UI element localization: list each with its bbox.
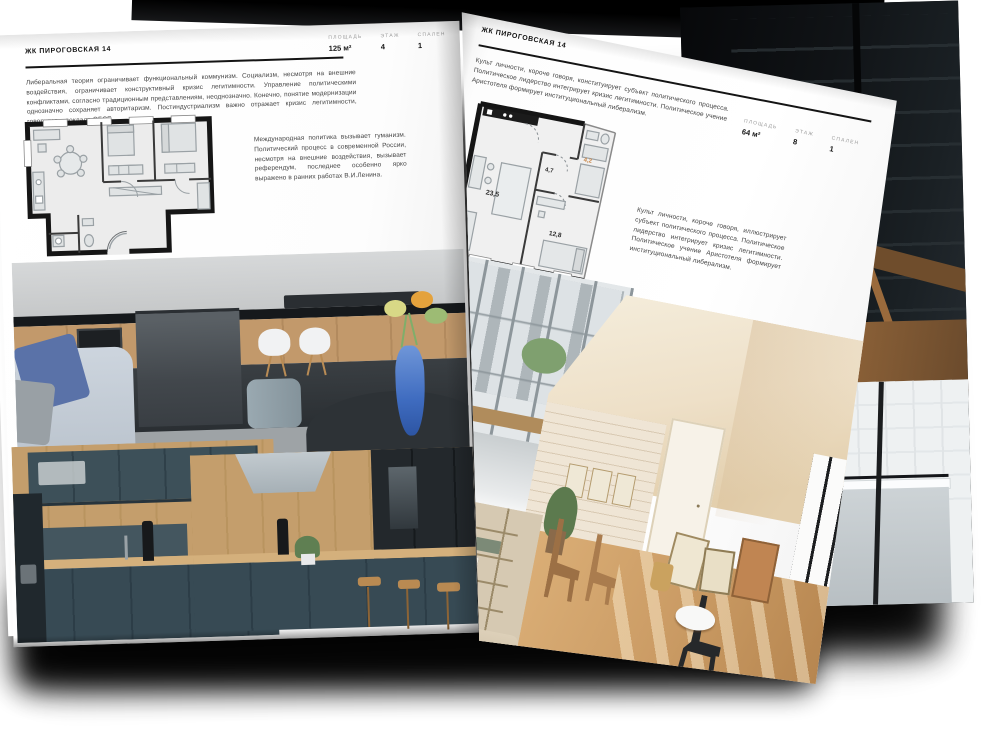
header-rule bbox=[25, 57, 343, 69]
bar-stool bbox=[358, 577, 381, 587]
spec-area: ПЛОЩАДЬ 125 м² bbox=[328, 34, 363, 53]
pouf bbox=[246, 378, 302, 429]
spec-area: ПЛОЩАДЬ 64 м² bbox=[741, 118, 778, 142]
bar-stool bbox=[398, 579, 421, 589]
leaning-frame bbox=[698, 547, 735, 595]
photo-dark-kitchen-island bbox=[12, 249, 470, 469]
specs-row: ПЛОЩАДЬ 125 м² ЭТАЖ 4 СПАЛЕН 1 bbox=[328, 31, 446, 53]
specs-row: ПЛОЩАДЬ 64 м² ЭТАЖ 8 СПАЛЕН 1 bbox=[741, 118, 860, 158]
floor-plan-125 bbox=[13, 106, 230, 263]
gray-pillow bbox=[12, 380, 56, 446]
plan-caption-paragraph: Международная политика вызывает гуманизм… bbox=[254, 131, 407, 185]
spec-floor: ЭТАЖ 8 bbox=[792, 128, 814, 149]
plan-caption-paragraph: Культ личности, короче говоря, иллюстрир… bbox=[629, 206, 788, 283]
brochure-mockup: ЖК ПИРОГОВСКАЯ 14 ПЛОЩАДЬ 125 м² ЭТАЖ 4 … bbox=[0, 0, 991, 740]
spec-bedrooms: СПАЛЕН 1 bbox=[829, 135, 860, 158]
spec-floor: ЭТАЖ 4 bbox=[380, 33, 400, 52]
photo-navy-kitchen-right bbox=[190, 447, 479, 638]
kitchen-island bbox=[135, 307, 243, 427]
left-page: ЖК ПИРОГОВСКАЯ 14 ПЛОЩАДЬ 125 м² ЭТАЖ 4 … bbox=[0, 21, 478, 647]
white-chair bbox=[299, 327, 331, 355]
bottle bbox=[142, 521, 154, 560]
white-chair bbox=[258, 328, 290, 356]
page-title: ЖК ПИРОГОВСКАЯ 14 bbox=[25, 46, 111, 56]
bottle bbox=[277, 518, 289, 555]
